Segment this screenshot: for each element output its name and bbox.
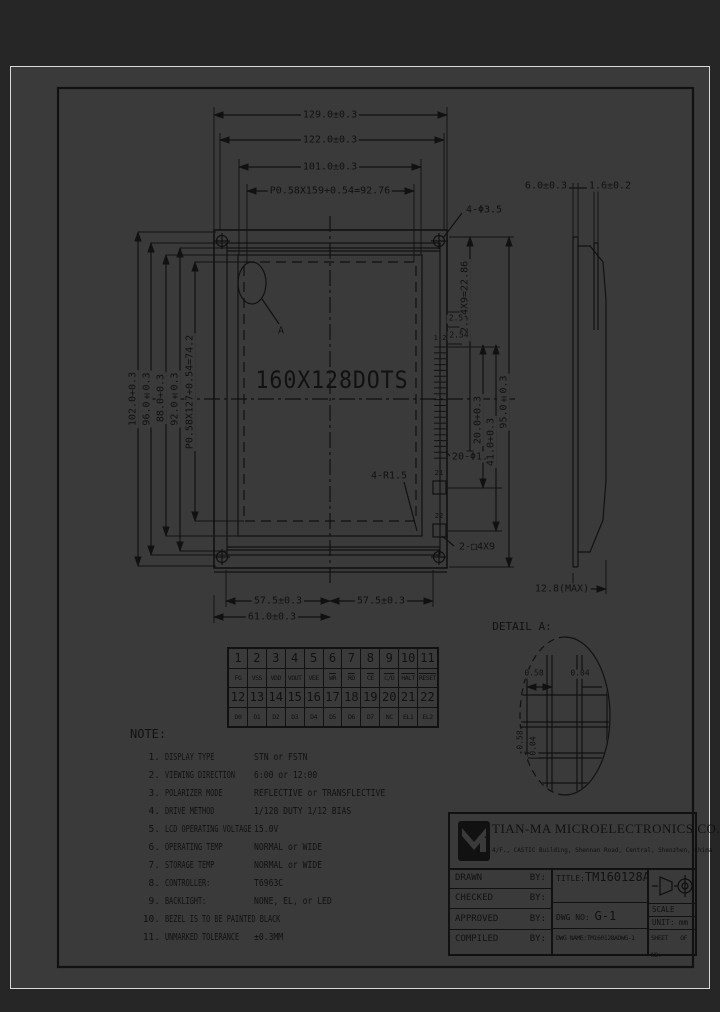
pin-signal-cell: VSS [248, 669, 267, 687]
note-number: 6. [130, 842, 160, 853]
dim-height-outline: 102.0+0.3 [128, 370, 139, 428]
note-number: 10. [130, 914, 160, 925]
note-value: NORMAL or WIDE [254, 860, 322, 871]
dim-connector-95: 95.0±0.3 [499, 373, 510, 430]
dim-connector-20: 20.0+0.3 [473, 394, 484, 446]
title-column: TITLE:TM160128A DWG NO: G-1 DWG NAME:TM1… [553, 868, 649, 954]
label-corner-radius: 4-R1.5 [369, 471, 409, 482]
pin-number-cell: 4 [286, 649, 305, 668]
title-value: TM160128A [585, 870, 647, 884]
detail-a-marker-circle [238, 262, 266, 304]
dwg-name-value: TM160128ADWG-1 [587, 934, 635, 942]
title-label: TITLE: [556, 874, 585, 883]
pin-assignment-table: 1234567891011 FGVSSVDDVOUTVEEWRRDCEC/DHA… [227, 647, 439, 728]
note-number: 3. [130, 788, 160, 799]
unit-label: UNIT: [652, 917, 675, 929]
pin-signal-cell: CE [361, 669, 380, 687]
pin-number-cell: 3 [267, 649, 286, 668]
pin-number-cell: 7 [342, 649, 361, 668]
note-item: 9. BACKLIGHT: NONE, EL, or LED [130, 892, 460, 910]
pin-number-cell: 13 [248, 688, 267, 707]
pin-signal-cell: WR [324, 669, 343, 687]
projection-symbol-icon [650, 872, 694, 900]
pin-number-cell: 16 [305, 688, 324, 707]
pin-number-cell: 18 [342, 688, 361, 707]
drawing-canvas: 129.0±0.3 122.0±0.3 101.0±0.3 P0.58X159+… [0, 0, 720, 1012]
tianma-logo-icon [458, 821, 490, 861]
sheet-no-label: SHEET NO: [651, 930, 680, 947]
note-value: NORMAL or WIDE [254, 842, 322, 853]
note-number: 11. [130, 932, 160, 943]
dim-pad-2-5: 2.5 [447, 315, 465, 324]
note-label: POLARIZER MODE [165, 788, 223, 799]
pin-number-cell: 11 [418, 649, 437, 668]
dwg-no-label: DWG NO: [556, 913, 590, 922]
dim-width-pitch: P0.58X159+0.54=92.76 [268, 186, 392, 197]
signature-by-label: BY: [530, 914, 546, 924]
signature-row: COMPILED BY: [450, 930, 551, 950]
dwg-no-cell: DWG NO: G-1 [553, 903, 647, 929]
note-value: 6:00 or 12:00 [254, 770, 317, 781]
pin-signal-cell: VOUT [286, 669, 305, 687]
note-number: 1. [130, 752, 160, 763]
pin-number-cell: 21 [399, 688, 418, 707]
note-label: BACKLIGHT: [165, 896, 206, 907]
signature-column: DRAWN BY: CHECKED BY: APPROVED BY: COMPI… [450, 868, 553, 954]
note-item: 4. DRIVE METHOD 1/128 DUTY 1/12 BIAS [130, 802, 460, 820]
dim-width-outline: 129.0±0.3 [301, 110, 359, 121]
unit-cell: UNIT: mm [649, 917, 695, 930]
note-number: 4. [130, 806, 160, 817]
pin-number-cell: 8 [361, 649, 380, 668]
detail-dim-v-pitch: 0.58 [517, 728, 526, 751]
note-value: T6963C [254, 878, 283, 889]
pin-signal-cell: RESET [418, 669, 437, 687]
dim-side-max: 12.8(MAX) [533, 584, 591, 595]
notes-list: 1. DISPLAY TYPE STN or FSTN 2. VIEWING D… [130, 748, 460, 946]
signature-by-label: BY: [530, 893, 546, 903]
note-label: LCD OPERATING VOLTAGE [165, 824, 251, 835]
signature-label: COMPILED [455, 934, 498, 944]
dim-bottom-total: 61.0±0.3 [246, 612, 298, 623]
note-item: 5. LCD OPERATING VOLTAGE 15.0V [130, 820, 460, 838]
note-item: 7. STORAGE TEMP NORMAL or WIDE [130, 856, 460, 874]
note-item: 3. POLARIZER MODE REFLECTIVE or TRANSFLE… [130, 784, 460, 802]
note-label: DRIVE METHOD [165, 806, 214, 817]
title-cell: TITLE:TM160128A [553, 868, 647, 903]
signature-by-label: BY: [530, 934, 546, 944]
pin-signal-cell: EL1 [399, 708, 418, 726]
notes-title: NOTE: [130, 727, 460, 741]
note-number: 7. [130, 860, 160, 871]
detail-dim-h-gap: 0.04 [568, 670, 591, 679]
signature-label: CHECKED [455, 893, 493, 903]
dim-width-bezel: 122.0±0.3 [301, 135, 359, 146]
dim-height-viewing: 88.0+0.3 [156, 372, 167, 424]
dim-side-thickness: 6.0±0.3 [523, 181, 569, 192]
pin-number-cell: 20 [380, 688, 399, 707]
pin-signal-cell: VDD [267, 669, 286, 687]
note-item: 1. DISPLAY TYPE STN or FSTN [130, 748, 460, 766]
note-item: 8. CONTROLLER: T6963C [130, 874, 460, 892]
note-item: 11. UNMARKED TOLERANCE ±0.3MM [130, 928, 460, 946]
dwg-name-label: DWG NAME: [556, 934, 587, 942]
pin-signal-cell: D7 [361, 708, 380, 726]
pin-number-cell: 9 [380, 649, 399, 668]
dim-height-opening: 92.0±0.3 [170, 370, 181, 427]
pin-number-21: 21 [435, 469, 443, 477]
pin-number-cell: 10 [399, 649, 418, 668]
pin-signal-cell: EL2 [418, 708, 437, 726]
pin-signal-cell: C/D [380, 669, 399, 687]
notes-section: NOTE: 1. DISPLAY TYPE STN or FSTN 2. VIE… [130, 727, 460, 946]
title-block: TIAN-MA MICROELECTRONICS CO. 4/F., CASTI… [448, 812, 697, 956]
note-label: UNMARKED TOLERANCE [165, 932, 239, 943]
pin-table-row-numbers-2: 1213141516171819202122 [229, 687, 437, 707]
note-number: 8. [130, 878, 160, 889]
dim-width-viewing: 101.0±0.3 [301, 162, 359, 173]
signature-row: APPROVED BY: [450, 909, 551, 930]
note-label: BEZEL IS TO BE PAINTED BLACK [165, 914, 280, 925]
pin-signal-cell: RD [342, 669, 361, 687]
pin-number-cell: 17 [324, 688, 343, 707]
pin-table-row-signals-2: D0D1D2D3D4D5D6D7NCEL1EL2 [229, 707, 437, 726]
note-item: 10. BEZEL IS TO BE PAINTED BLACK [130, 910, 460, 928]
detail-dim-v-gap: 0.04 [530, 734, 539, 757]
pin-table-row-signals-1: FGVSSVDDVOUTVEEWRRDCEC/DHALTRESET [229, 668, 437, 687]
note-value: STN or FSTN [254, 752, 307, 763]
projection-symbol-cell [649, 868, 695, 904]
note-value: 15.0V [254, 824, 278, 835]
pin-signal-cell: D6 [342, 708, 361, 726]
note-value: ±0.3MM [254, 932, 283, 943]
sheet-no-value: OF [680, 930, 687, 947]
label-slots: 2-□4X9 [457, 542, 497, 553]
scale-cell: SCALE [649, 904, 695, 917]
pin-signal-cell: D2 [267, 708, 286, 726]
note-value: 1/128 DUTY 1/12 BIAS [254, 806, 351, 817]
pin-number-1-2: 1 2 [434, 334, 447, 342]
pin-number-cell: 14 [267, 688, 286, 707]
detail-dim-h-pitch: 0.58 [522, 670, 545, 679]
signature-label: APPROVED [455, 914, 498, 924]
note-number: 2. [130, 770, 160, 781]
signature-label: DRAWN [455, 873, 482, 883]
pin-signal-cell: HALT [399, 669, 418, 687]
pin-signal-cell: NC [380, 708, 399, 726]
scale-column: SCALE UNIT: mm SHEET NO: OF [649, 868, 695, 954]
detail-a-linework [505, 637, 625, 795]
display-resolution-text: 160X128DOTS [256, 366, 409, 394]
signature-row: CHECKED BY: [450, 889, 551, 910]
pin-signal-cell: D0 [229, 708, 248, 726]
signature-row: DRAWN BY: [450, 868, 551, 889]
dim-bottom-left: 57.5±0.3 [252, 596, 304, 607]
dim-connector-pitch: P2.54X9=22.86 [460, 259, 471, 341]
note-value: REFLECTIVE or TRANSFLECTIVE [254, 788, 385, 799]
pin-number-cell: 19 [361, 688, 380, 707]
dwg-no-value: G-1 [595, 909, 617, 923]
note-value: NONE, EL, or LED [254, 896, 332, 907]
note-label: CONTROLLER: [165, 878, 210, 889]
dim-height-pitch: P0.58X127+0.54=74.2 [185, 333, 196, 451]
dim-pad-2-54: 2.54 [447, 332, 470, 341]
pin-table-row-numbers-1: 1234567891011 [229, 649, 437, 668]
side-view-linework [573, 237, 606, 567]
title-block-header: TIAN-MA MICROELECTRONICS CO. 4/F., CASTI… [450, 814, 695, 870]
dim-bottom-right: 57.5±0.3 [355, 596, 407, 607]
note-item: 6. OPERATING TEMP NORMAL or WIDE [130, 838, 460, 856]
signature-by-label: BY: [530, 873, 546, 883]
pin-number-cell: 22 [418, 688, 437, 707]
pin-signal-cell: VEE [305, 669, 324, 687]
pin-signal-cell: FG [229, 669, 248, 687]
detail-a-pointer-label: A [276, 326, 286, 337]
pin-number-cell: 15 [286, 688, 305, 707]
note-number: 9. [130, 896, 160, 907]
pin-signal-cell: D1 [248, 708, 267, 726]
note-label: OPERATING TEMP [165, 842, 223, 853]
sheet-no-cell: SHEET NO: OF [649, 930, 695, 947]
pin-number-cell: 2 [248, 649, 267, 668]
label-mounting-holes: 4-Φ3.5 [464, 205, 504, 216]
unit-value: mm [679, 917, 688, 929]
note-item: 2. VIEWING DIRECTION 6:00 or 12:00 [130, 766, 460, 784]
pin-number-cell: 12 [229, 688, 248, 707]
dim-side-glass: 1.6±0.2 [587, 181, 633, 192]
note-label: DISPLAY TYPE [165, 752, 214, 763]
detail-a-title: DETAIL A: [490, 621, 554, 633]
pin-number-cell: 5 [305, 649, 324, 668]
pin-signal-cell: D4 [305, 708, 324, 726]
pin-number-cell: 1 [229, 649, 248, 668]
note-number: 5. [130, 824, 160, 835]
pin-signal-cell: D5 [324, 708, 343, 726]
pin-signal-cell: D3 [286, 708, 305, 726]
note-label: STORAGE TEMP [165, 860, 214, 871]
note-label: VIEWING DIRECTION [165, 770, 235, 781]
dwg-name-cell: DWG NAME:TM160128ADWG-1 [553, 929, 647, 946]
company-name: TIAN-MA MICROELECTRONICS CO. [492, 821, 693, 837]
dim-connector-41: 41.0+0.3 [486, 416, 497, 468]
pin-number-cell: 6 [324, 649, 343, 668]
company-address: 4/F., CASTIC Building, Shennan Road, Cen… [492, 847, 693, 854]
dim-height-bezel: 96.0±0.3 [142, 370, 153, 427]
pin-number-22: 22 [435, 512, 443, 520]
